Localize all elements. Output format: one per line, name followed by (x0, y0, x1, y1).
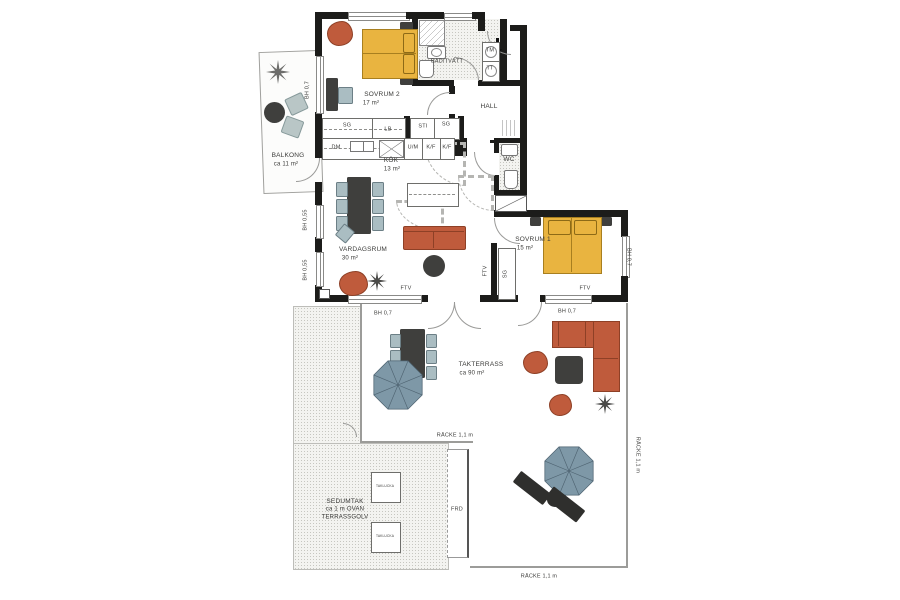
wc-label: WC (503, 156, 514, 164)
pillow (548, 220, 571, 235)
bed-split-line (362, 53, 416, 54)
shower-icon (419, 20, 445, 46)
balcony-table (264, 102, 285, 123)
terrace-bh-left: BH 0,7 (374, 311, 392, 318)
railing-label-mid: RÄCKE 1,1 m (437, 433, 473, 440)
window-living-west1 (316, 205, 324, 239)
ftv-sovrum1-label: FTV (580, 286, 591, 293)
coffee-table (423, 255, 445, 277)
sovrum1-area-label: 15 m² (517, 245, 533, 253)
plant-icon (266, 60, 290, 84)
wall (520, 25, 527, 203)
kitchen-area-label: 13 m² (384, 166, 400, 174)
appliance-kf1-label: K/F (426, 145, 435, 152)
terrace-railing-bottom (470, 566, 628, 568)
outdoor-chair (390, 334, 401, 348)
washing-machine-label: TM (486, 48, 494, 55)
dryer-label: TT (486, 66, 493, 73)
bh07-sovrum1-east-label: BH 0,7 (625, 248, 632, 266)
sedum-label-1: SEDUMTAK (326, 498, 363, 506)
terrace-railing-left (360, 303, 362, 443)
bed-split-line (571, 217, 572, 272)
terrace-pouf (523, 351, 548, 374)
terrace-door-arc-sovrum1 (518, 302, 542, 326)
terrace-railing-right (626, 303, 628, 568)
dining-chair (372, 199, 384, 214)
roof-hatch-1-label: TAKLUCKA (376, 485, 394, 489)
kitchen-island-dashline (409, 194, 455, 195)
terrace-sofa-right (593, 321, 620, 392)
terrace-railing-mid (360, 441, 473, 443)
coat-rack-icon (502, 120, 518, 136)
frd-label: FRD (451, 507, 463, 514)
kitchen-island (407, 183, 459, 207)
wall-notch (319, 289, 330, 299)
wall (315, 12, 322, 56)
wc-toilet-icon (504, 170, 518, 189)
frd-storage-room (447, 449, 469, 558)
wall (490, 140, 495, 143)
outdoor-chair (426, 350, 437, 364)
nightstand (601, 217, 612, 226)
desk (326, 78, 338, 111)
plant-pot (327, 21, 353, 46)
window-living-south (348, 295, 422, 304)
terrace-label: TAKTERRASS (459, 361, 504, 369)
bh055-label-1: BH 0,55 (303, 209, 310, 230)
hall-label: HALL (480, 103, 497, 111)
wall (494, 175, 499, 190)
outdoor-chair (426, 366, 437, 380)
living-area-label: 30 m² (342, 255, 358, 263)
living-label: VARDAGSRUM (339, 246, 387, 254)
sovrum2-label: SOVRUM 2 (364, 91, 400, 99)
closet-sg2-label: SG (442, 122, 450, 129)
wardrobe-sg-label: SG (343, 123, 351, 130)
wall (412, 80, 454, 86)
sovrum2-door-arc (427, 92, 450, 115)
balcony-bh-label: BH 0,7 (305, 81, 312, 99)
pillow (403, 33, 415, 53)
sofa-cushion-line (593, 358, 618, 359)
wardrobe-divider (372, 118, 373, 140)
window-sovrum1-south (545, 295, 592, 304)
wc-basin-icon (501, 144, 518, 156)
wall (315, 237, 322, 252)
wall (621, 217, 628, 237)
washbasin-bowl-icon (431, 48, 442, 57)
sedum-label-3: TERRASSGOLV (322, 514, 369, 522)
closet-sti-label: STI (418, 124, 427, 131)
window-sovrum2-west (316, 56, 324, 114)
wardrobe-lb-label: LB (384, 127, 391, 134)
parasol-icon (370, 357, 426, 413)
window-living-west2 (316, 252, 324, 287)
dining-chair (372, 182, 384, 197)
window-sovrum2 (348, 12, 410, 21)
sedum-label-2: ca 1 m OVAN (326, 506, 364, 514)
dining-table (347, 177, 371, 234)
closet-sovrum1-label: SG (503, 270, 510, 278)
ftv-passage-label: FTV (483, 266, 490, 277)
bh055-label-2: BH 0,55 (303, 259, 310, 280)
bath-label: BAD/TVÄTT (431, 59, 463, 66)
terrace-pouf (549, 394, 572, 416)
roof-hatch-2-label: TAKLUCKA (376, 535, 394, 539)
kitchen-label: KÖK (384, 157, 398, 165)
sink-icon (350, 141, 364, 152)
shaft-diagonal (495, 195, 527, 212)
outdoor-chair (426, 334, 437, 348)
terrace-area-label: ca 90 m² (460, 370, 485, 378)
balcony-area-label: ca 11 m² (274, 161, 299, 169)
terrace-double-door-arc-right (454, 302, 481, 329)
wall (406, 12, 444, 19)
appliance-kf2-label: K/F (442, 145, 451, 152)
dining-chair (336, 182, 348, 197)
wall (315, 112, 322, 158)
wall (590, 295, 628, 302)
plant-icon (366, 271, 388, 291)
stove-icon (379, 140, 404, 158)
ftv-living-label: FTV (401, 286, 412, 293)
terrace-bh-right: BH 0,7 (558, 309, 576, 316)
terrace-double-door-arc-left (428, 302, 455, 329)
opening-swing-dashed (458, 175, 494, 211)
sofa-cushion-line (585, 321, 586, 346)
floor-plan-canvas: FRD TAKLUCKA TAKLUCKA SEDUMTAK ca 1 m OV… (0, 0, 900, 600)
pillow (403, 54, 415, 74)
dishwasher-label: DM (332, 145, 341, 152)
sofa (403, 226, 466, 250)
wall (478, 12, 485, 31)
railing-label-bottom: RÄCKE 1,1 m (521, 574, 557, 581)
sofa-cushion-line (558, 321, 559, 346)
plant-icon (595, 394, 615, 414)
appliance-um-label: U/M (408, 145, 419, 152)
railing-label-right: RÄCKE 1,1 m (634, 437, 641, 473)
sink-icon (363, 141, 374, 152)
desk-chair (338, 87, 353, 104)
dining-chair (372, 216, 384, 231)
sovrum2-area-label: 17 m² (363, 100, 379, 108)
terrace-coffee-table (555, 356, 583, 384)
wall (315, 182, 322, 205)
wc-door-arc (474, 152, 495, 176)
wall (491, 243, 497, 302)
sovrum1-label: SOVRUM 1 (515, 236, 551, 244)
wall (540, 295, 545, 302)
nightstand (530, 217, 541, 226)
sofa-cushion-line (433, 231, 434, 248)
pillow (574, 220, 597, 235)
armchair (339, 271, 368, 296)
dining-chair (336, 199, 348, 214)
